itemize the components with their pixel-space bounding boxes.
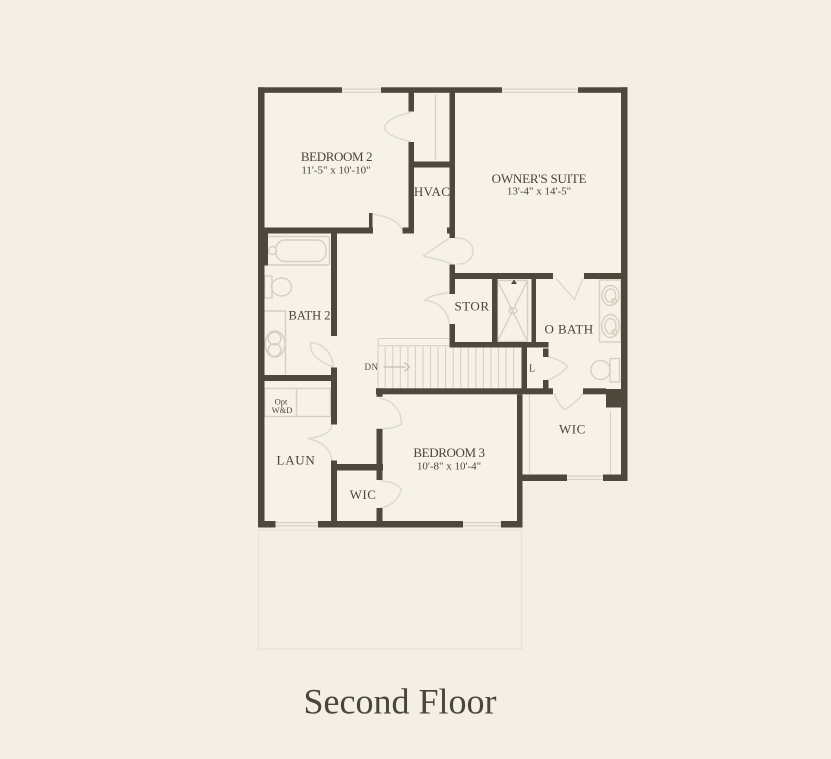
- svg-text:WIC: WIC: [559, 422, 586, 437]
- svg-text:WIC: WIC: [350, 487, 377, 502]
- svg-text:DN: DN: [365, 362, 379, 372]
- svg-text:STOR: STOR: [455, 299, 490, 314]
- svg-text:11'-5" x 10'-10": 11'-5" x 10'-10": [301, 165, 370, 177]
- svg-text:Second Floor: Second Floor: [304, 682, 497, 722]
- svg-text:L: L: [529, 364, 535, 375]
- svg-text:LAUN: LAUN: [277, 453, 316, 468]
- svg-text:W&D: W&D: [272, 405, 293, 415]
- svg-text:BEDROOM 2: BEDROOM 2: [301, 149, 372, 164]
- svg-text:13'-4" x 14'-5": 13'-4" x 14'-5": [507, 186, 571, 198]
- svg-text:O BATH: O BATH: [545, 322, 594, 337]
- svg-text:HVAC: HVAC: [414, 184, 450, 199]
- svg-text:BATH 2: BATH 2: [288, 309, 330, 323]
- svg-text:10'-8" x 10'-4": 10'-8" x 10'-4": [417, 461, 481, 473]
- svg-text:OWNER'S SUITE: OWNER'S SUITE: [492, 171, 587, 186]
- svg-text:BEDROOM 3: BEDROOM 3: [413, 445, 484, 460]
